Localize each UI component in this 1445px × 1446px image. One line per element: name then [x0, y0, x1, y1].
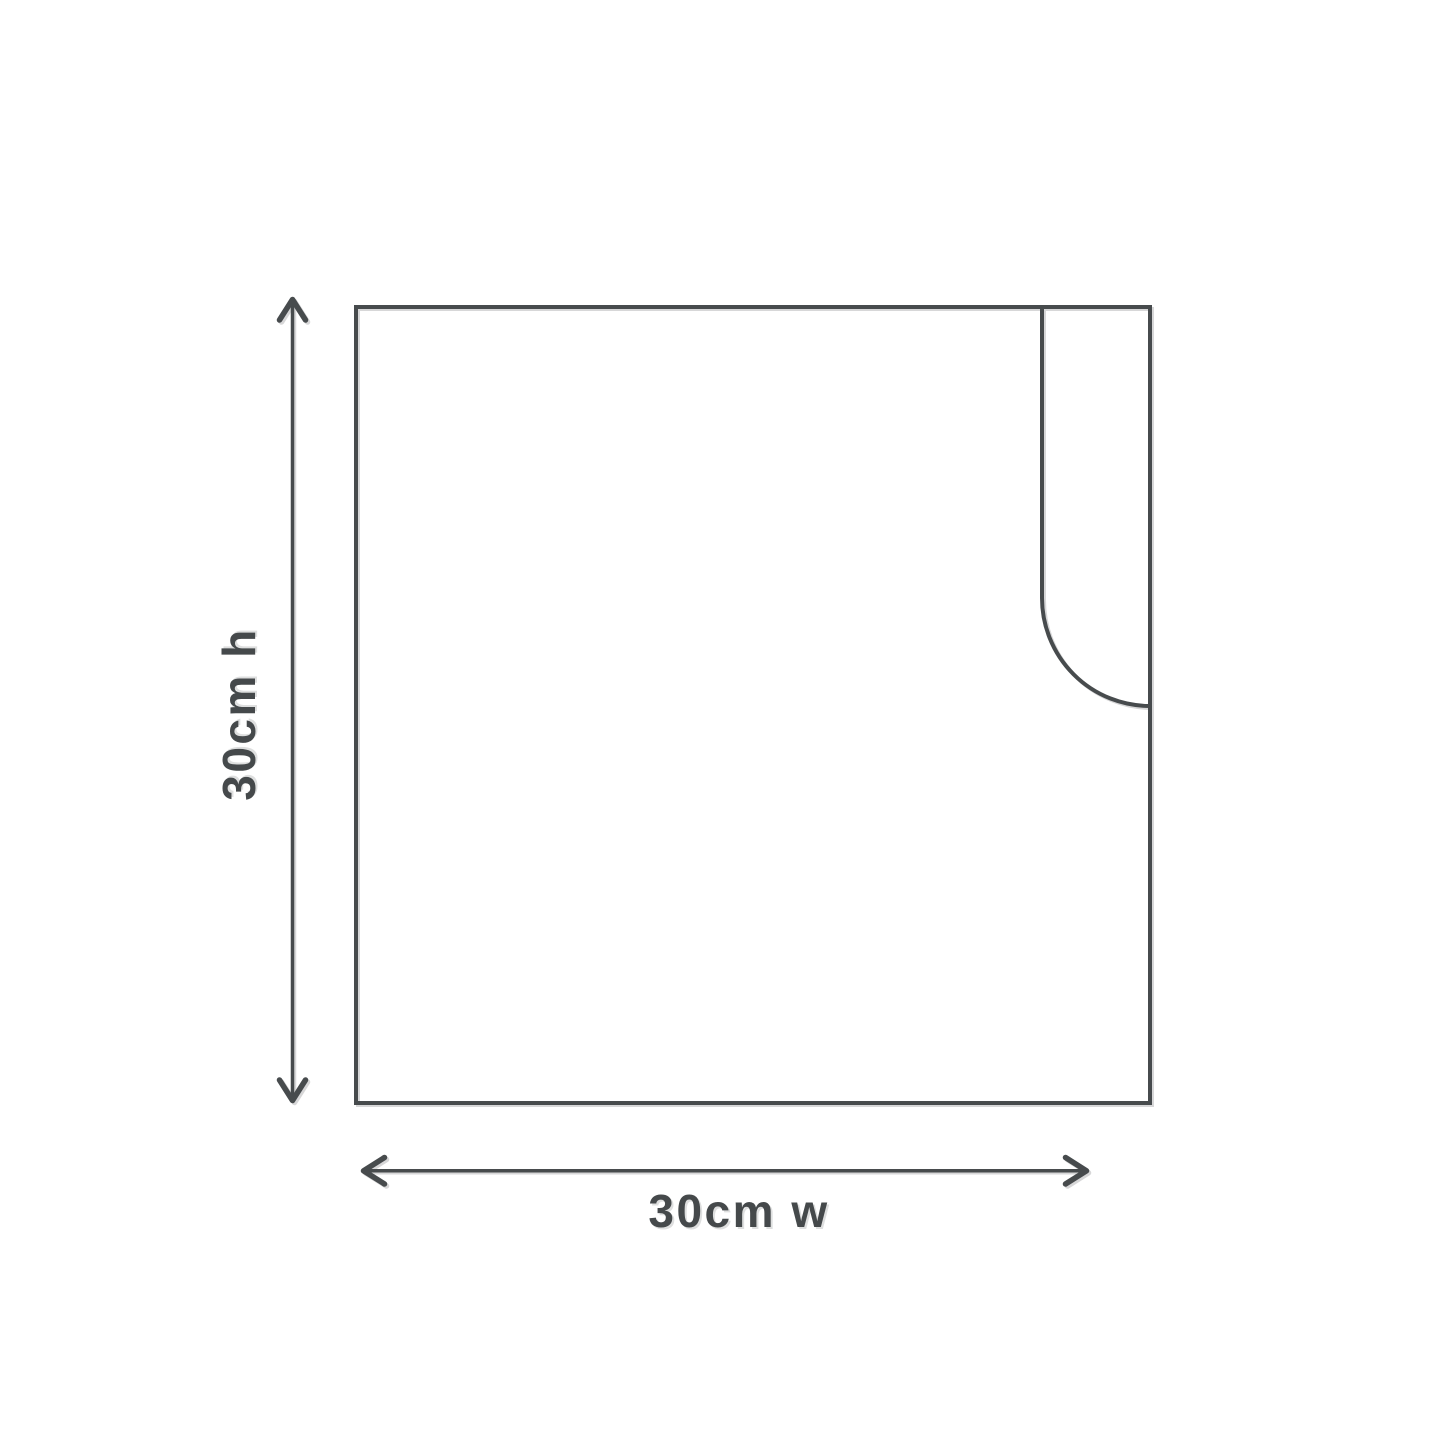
- width-dimension-label: 30cm w: [648, 1184, 829, 1238]
- height-dimension-arrow: [280, 300, 306, 1101]
- width-dimension-arrow: [364, 1158, 1087, 1185]
- height-dimension-label: 30cm h: [212, 627, 266, 801]
- sleeve-outline: [356, 307, 1150, 1103]
- thumb-cutout-curve: [1042, 307, 1150, 706]
- sleeve-square: [356, 307, 1150, 1103]
- dimension-diagram: 30cm h 30cm w: [0, 0, 1445, 1446]
